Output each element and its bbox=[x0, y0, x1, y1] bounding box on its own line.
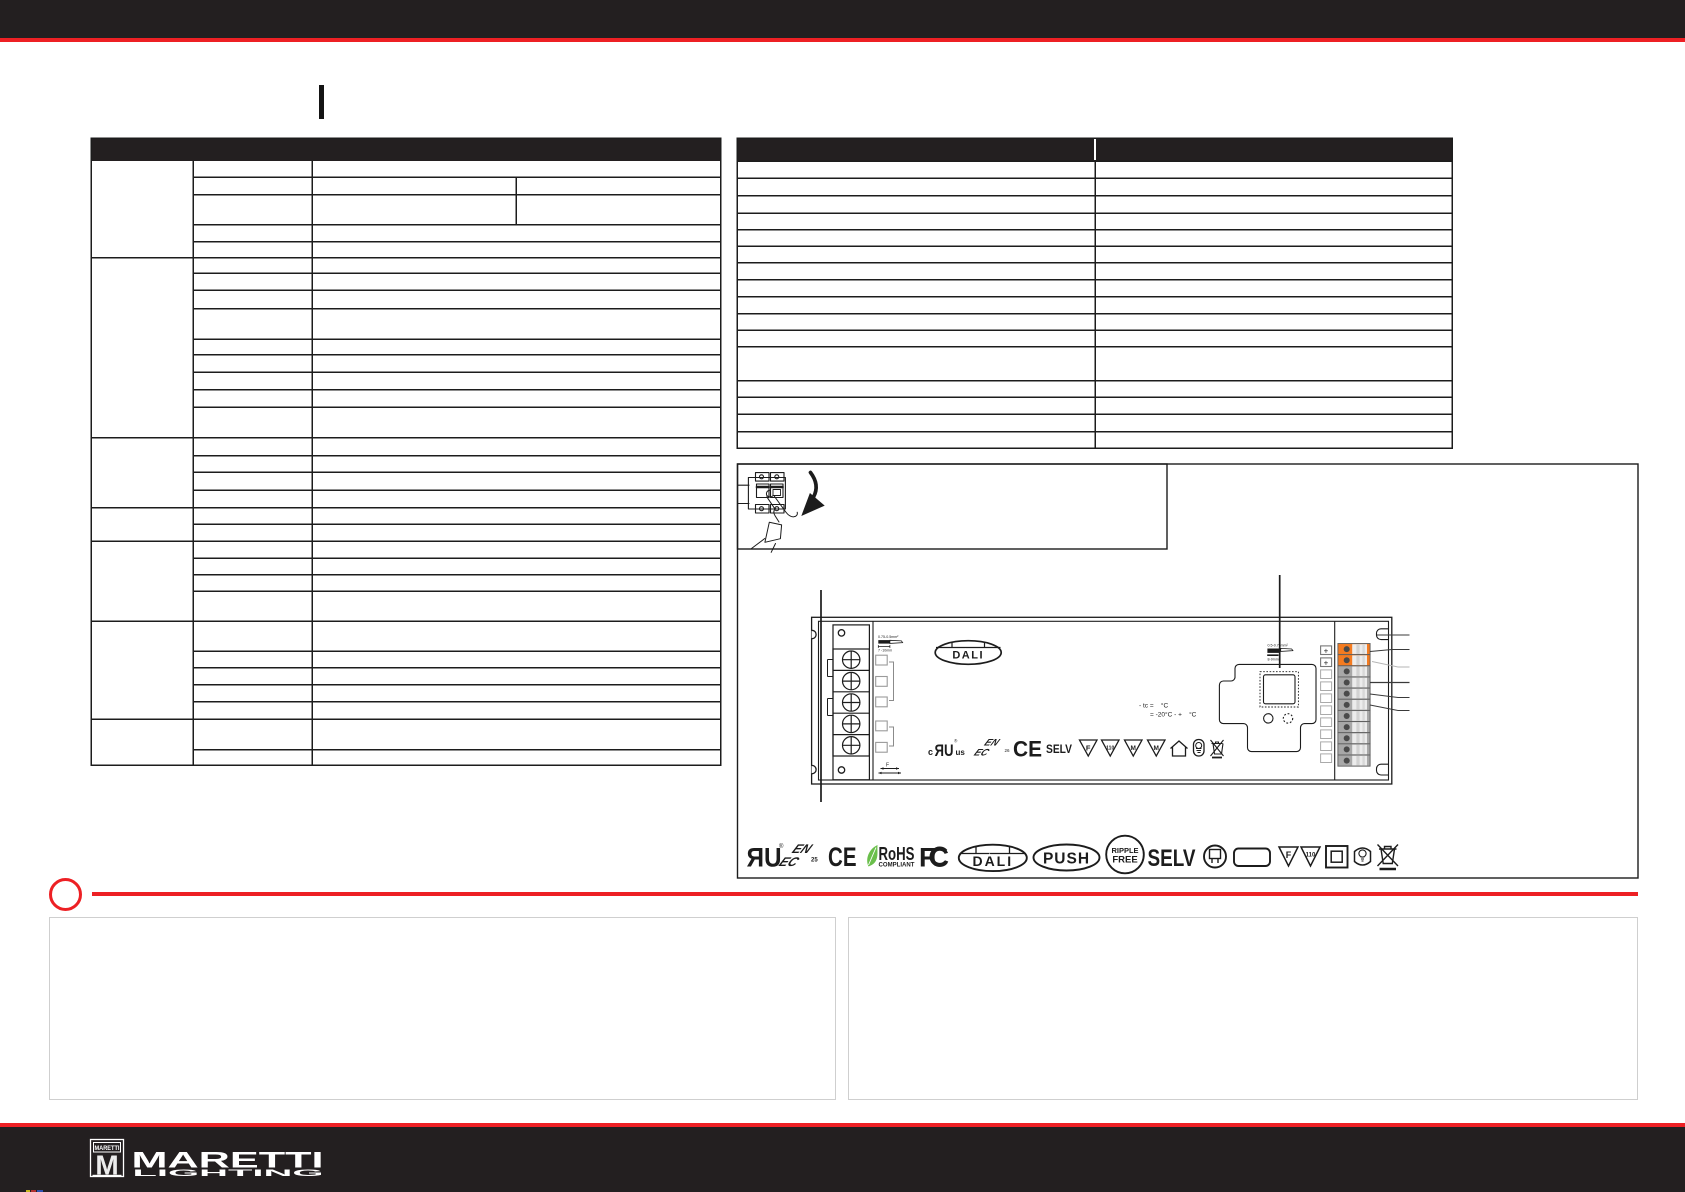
svg-text:+: + bbox=[1324, 659, 1329, 668]
svg-text:us: us bbox=[956, 748, 966, 757]
svg-text:110: 110 bbox=[1306, 853, 1316, 859]
svg-text:EN: EN bbox=[789, 842, 815, 856]
svg-text:F: F bbox=[1286, 850, 1292, 860]
svg-text:- tc = °C: - tc = °C bbox=[1139, 702, 1168, 710]
svg-text:EC: EC bbox=[972, 748, 992, 758]
svg-text:EN: EN bbox=[982, 738, 1002, 748]
svg-text:0.5-0.75mm²: 0.5-0.75mm² bbox=[1268, 644, 1289, 648]
svg-text:UR: UR bbox=[934, 742, 953, 760]
svg-text:7 -10mm: 7 -10mm bbox=[878, 649, 892, 653]
svg-text:®: ® bbox=[779, 843, 784, 850]
svg-text:c: c bbox=[928, 747, 933, 757]
svg-text:SELV: SELV bbox=[1046, 744, 1072, 756]
svg-text:8-9mm: 8-9mm bbox=[1268, 658, 1279, 662]
svg-text:PUSH: PUSH bbox=[1043, 851, 1090, 868]
svg-text:F: F bbox=[886, 763, 889, 769]
svg-text:DALI: DALI bbox=[972, 853, 1013, 869]
svg-text:110: 110 bbox=[1106, 746, 1114, 752]
svg-text:M: M bbox=[1130, 745, 1135, 752]
svg-text:CE: CE bbox=[828, 842, 857, 872]
svg-text:26: 26 bbox=[1005, 748, 1011, 753]
svg-text:CE: CE bbox=[1013, 737, 1042, 762]
svg-text:= -20°C - + °C: = -20°C - + °C bbox=[1150, 711, 1197, 719]
svg-text:+: + bbox=[1324, 647, 1329, 656]
svg-text:LIGHTING: LIGHTING bbox=[133, 1168, 325, 1178]
svg-text:M: M bbox=[1153, 745, 1158, 752]
svg-text:0.75-0.5mm²: 0.75-0.5mm² bbox=[878, 635, 899, 639]
svg-text:COMPLIANT: COMPLIANT bbox=[879, 862, 916, 869]
svg-text:25: 25 bbox=[811, 858, 818, 864]
svg-text:SELV: SELV bbox=[1148, 845, 1196, 872]
svg-text:DALI: DALI bbox=[952, 650, 984, 662]
svg-text:®: ® bbox=[954, 738, 958, 744]
svg-text:F: F bbox=[1086, 744, 1091, 753]
svg-text:FREE: FREE bbox=[1112, 855, 1137, 866]
